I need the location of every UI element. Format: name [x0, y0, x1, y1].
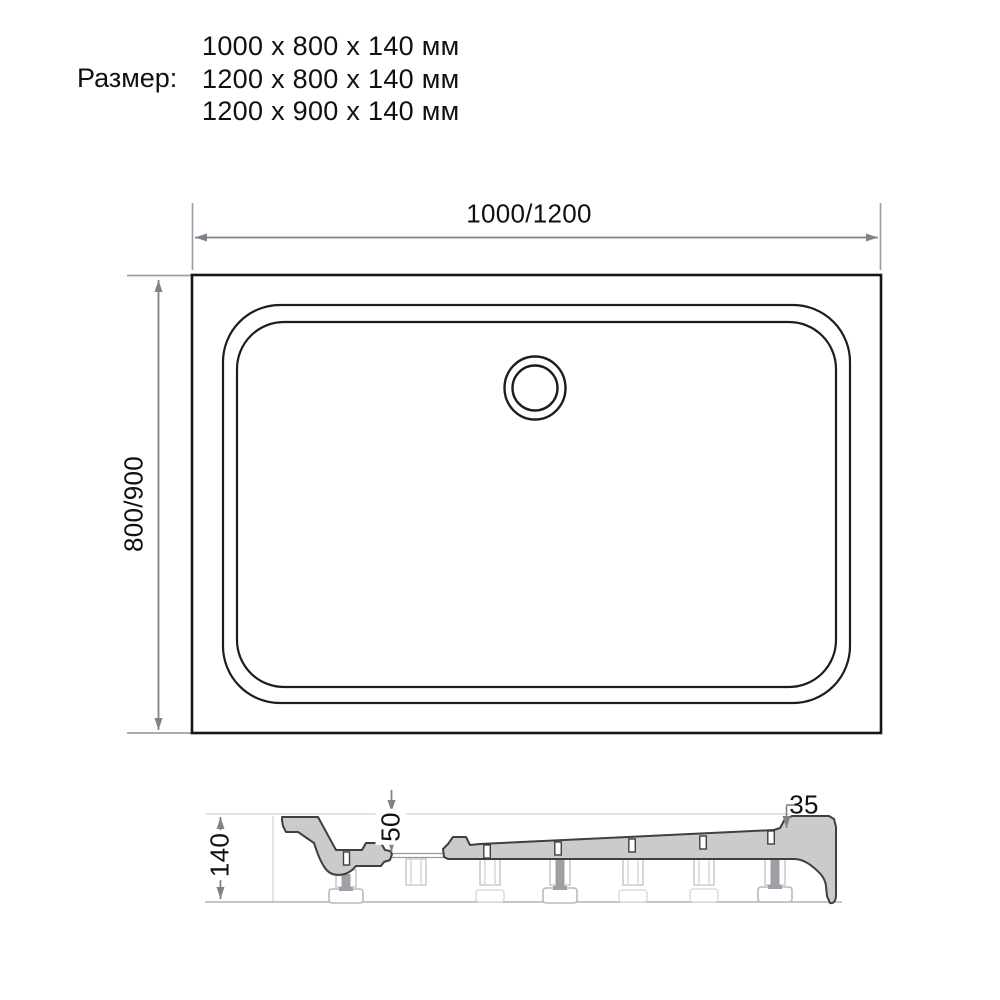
- size-block-label: Размер:: [77, 63, 177, 94]
- adjustable-feet: [329, 856, 792, 903]
- width-dimension-label: 1000/1200: [466, 199, 592, 230]
- diagram-page: Размер: 1000 x 800 x 140 мм 1200 x 800 x…: [0, 0, 1000, 1000]
- rim-height-dimension-label: 35: [789, 790, 819, 821]
- foot-nut: [339, 887, 353, 891]
- size-option: 1200 x 800 x 140 мм: [202, 63, 460, 96]
- size-options: 1000 x 800 x 140 мм 1200 x 800 x 140 мм …: [202, 30, 460, 128]
- total-height-dimension-label: 140: [205, 830, 236, 880]
- foot-screw: [771, 856, 780, 888]
- size-option: 1000 x 800 x 140 мм: [202, 30, 460, 63]
- top-view: [127, 203, 881, 733]
- technical-drawing: [0, 0, 1000, 1000]
- size-option: 1200 x 900 x 140 мм: [202, 95, 460, 128]
- foot-base: [543, 888, 577, 903]
- foot-base: [758, 887, 792, 902]
- height-dimension-label: 800/900: [119, 456, 150, 552]
- tray-outer-edge: [192, 275, 881, 733]
- foot-nut: [768, 885, 782, 889]
- foot-screw: [556, 859, 565, 889]
- foot-base: [329, 889, 363, 903]
- basin-depth-dimension-label: 50: [376, 809, 407, 845]
- foot-nut: [553, 886, 567, 890]
- side-section-view: [205, 790, 842, 903]
- ghost-feet: [476, 889, 718, 902]
